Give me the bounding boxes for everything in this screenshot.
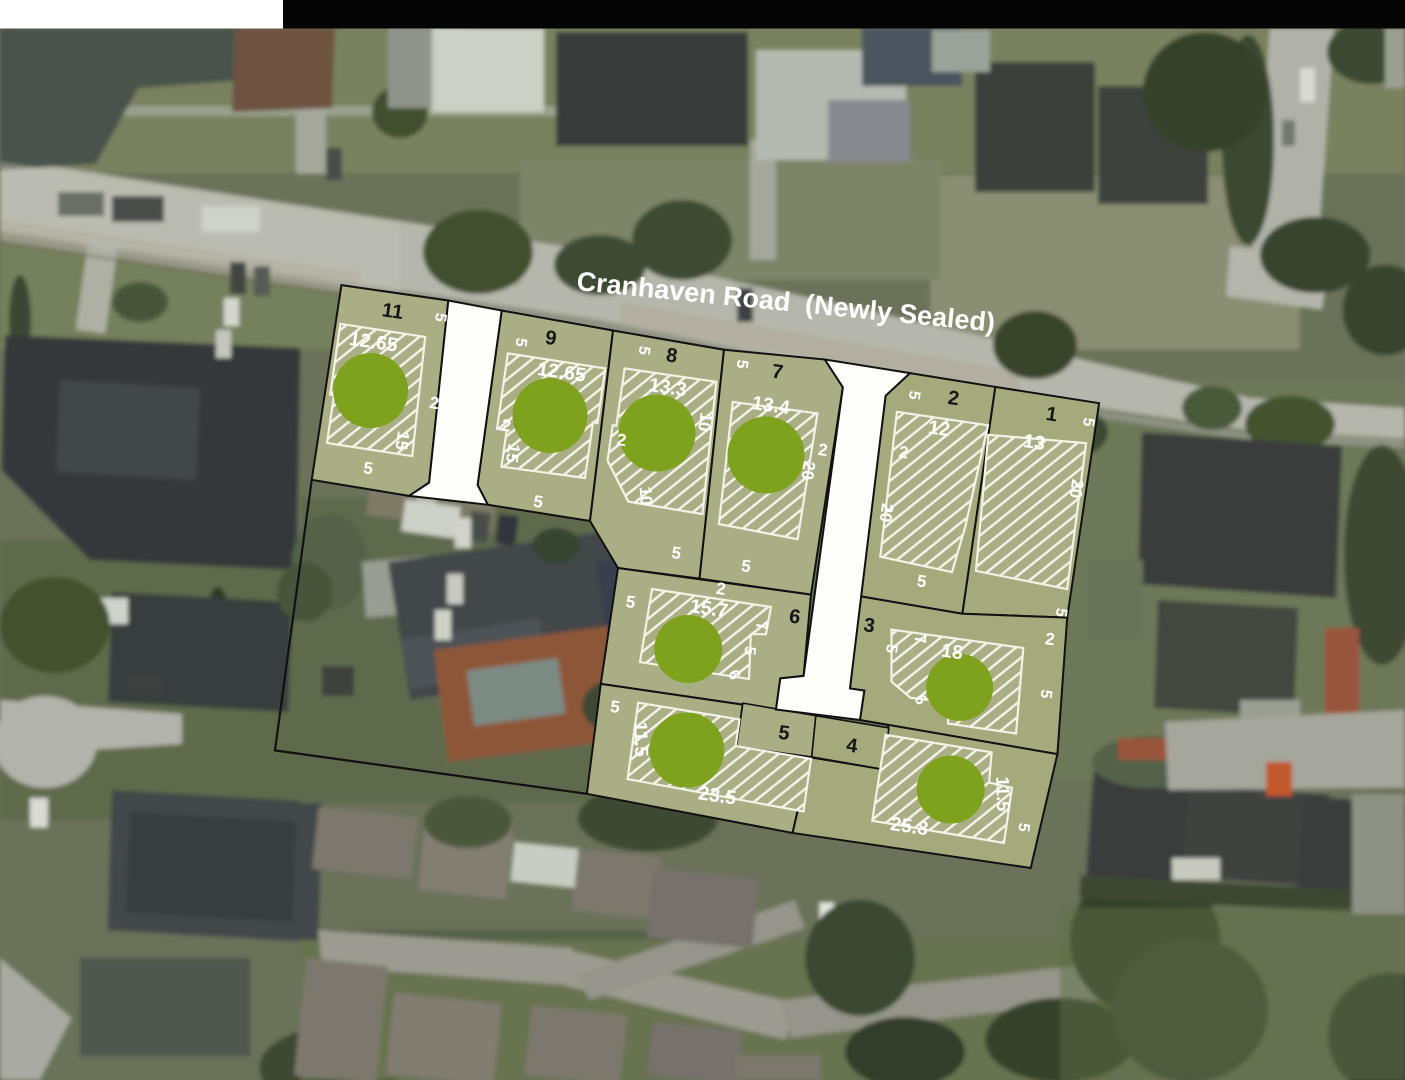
- svg-text:15: 15: [391, 430, 413, 451]
- svg-text:15: 15: [502, 443, 524, 464]
- svg-text:18: 18: [940, 640, 965, 665]
- svg-text:20: 20: [876, 502, 898, 523]
- svg-text:20: 20: [797, 460, 819, 481]
- svg-text:11: 11: [381, 299, 405, 324]
- svg-text:10: 10: [636, 486, 656, 506]
- svg-text:11.5: 11.5: [630, 721, 652, 757]
- svg-text:13: 13: [1022, 430, 1047, 455]
- svg-text:11.5: 11.5: [992, 776, 1014, 812]
- svg-text:12: 12: [927, 416, 952, 441]
- svg-text:10: 10: [694, 411, 716, 432]
- svg-text:20: 20: [1066, 478, 1088, 499]
